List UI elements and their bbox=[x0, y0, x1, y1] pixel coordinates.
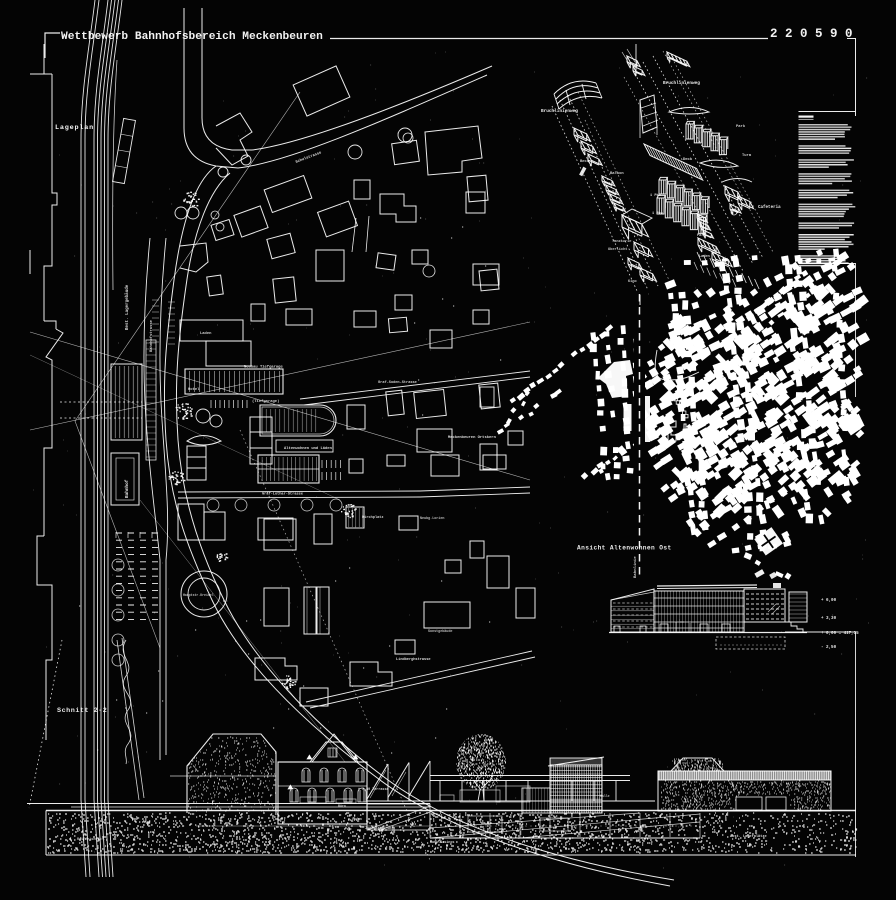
svg-text:Oberlicht: Oberlicht bbox=[608, 247, 627, 252]
svg-text:Altenwohnen und Läden: Altenwohnen und Läden bbox=[284, 446, 333, 451]
svg-text:Best. Lagergebäude: Best. Lagergebäude bbox=[125, 284, 130, 330]
svg-text:+ 0,00 = 417,35: + 0,00 = 417,35 bbox=[821, 632, 859, 636]
svg-text:(Tiefgarage): (Tiefgarage) bbox=[252, 399, 279, 404]
svg-text:+ 3,30: + 3,30 bbox=[821, 617, 837, 621]
svg-text:Laden: Laden bbox=[352, 817, 362, 821]
svg-text:Beck: Beck bbox=[580, 159, 590, 164]
svg-text:Jugendzentrum: Jugendzentrum bbox=[365, 826, 391, 831]
svg-text:Sonstgebäude: Sonstgebäude bbox=[428, 629, 452, 634]
svg-text:Kino: Kino bbox=[628, 279, 637, 284]
svg-text:Bruchlinienweg: Bruchlinienweg bbox=[541, 109, 578, 114]
svg-text:Lindberghstrasse: Lindberghstrasse bbox=[396, 657, 431, 662]
svg-text:Balkon: Balkon bbox=[610, 171, 624, 176]
svg-text:Neubg.Lorien: Neubg.Lorien bbox=[420, 516, 444, 521]
svg-text:Abst. Lagerplätze: Abst. Lagerplätze bbox=[730, 834, 767, 839]
svg-text:Cafeteria: Cafeteria bbox=[758, 205, 781, 210]
svg-text:Halle: Halle bbox=[600, 794, 610, 798]
svg-text:Büro: Büro bbox=[338, 804, 346, 808]
svg-text:Schnitt 2-2: Schnitt 2-2 bbox=[57, 707, 107, 715]
svg-text:Laden: Laden bbox=[200, 331, 212, 336]
svg-text:Meckenbeuren Ortskern: Meckenbeuren Ortskern bbox=[448, 435, 497, 440]
svg-text:2 2 0 5 9 0: 2 2 0 5 9 0 bbox=[770, 27, 853, 41]
svg-text:Bahnhofstrasse: Bahnhofstrasse bbox=[149, 319, 154, 352]
svg-text:Kirchplatz: Kirchplatz bbox=[362, 515, 384, 520]
svg-text:Bahnlinie: Bahnlinie bbox=[633, 556, 638, 578]
svg-text:Park: Park bbox=[736, 124, 746, 129]
svg-text:Hauptstr.Kreisel: Hauptstr.Kreisel bbox=[183, 593, 214, 597]
svg-text:+ 3,30 Terrasse: + 3,30 Terrasse bbox=[358, 787, 389, 792]
svg-text:Bahnhof: Bahnhof bbox=[125, 479, 130, 498]
svg-text:Graf-Lothar-Strasse: Graf-Lothar-Strasse bbox=[262, 492, 303, 497]
svg-text:+ 6,00: + 6,00 bbox=[821, 599, 837, 603]
svg-text:Bank-Casinos: Bank-Casinos bbox=[430, 840, 454, 845]
svg-text:Deck: Deck bbox=[683, 157, 693, 162]
svg-text:Neubau Tiefgarage: Neubau Tiefgarage bbox=[244, 365, 283, 370]
svg-text:Tanzkurie: Tanzkurie bbox=[612, 239, 631, 244]
svg-text:Turm: Turm bbox=[742, 153, 752, 158]
svg-text:Lageplan: Lageplan bbox=[55, 124, 94, 132]
svg-text:Bruchlinienweg: Bruchlinienweg bbox=[663, 81, 700, 86]
svg-text:Wettbewerb Bahnhofsbereich Mec: Wettbewerb Bahnhofsbereich Meckenbeuren bbox=[61, 31, 323, 43]
svg-text:Raiffeisenstr.: Raiffeisenstr. bbox=[77, 837, 106, 842]
svg-text:Hotel: Hotel bbox=[188, 387, 200, 392]
svg-text:1 Pkw: 1 Pkw bbox=[652, 211, 664, 216]
svg-text:- 2,50: - 2,50 bbox=[821, 646, 837, 650]
svg-text:Ansicht Altenwohnen Ost: Ansicht Altenwohnen Ost bbox=[577, 545, 672, 552]
svg-text:Graf-Soden-Strasse: Graf-Soden-Strasse bbox=[378, 380, 417, 385]
svg-text:Park: Park bbox=[697, 233, 706, 238]
